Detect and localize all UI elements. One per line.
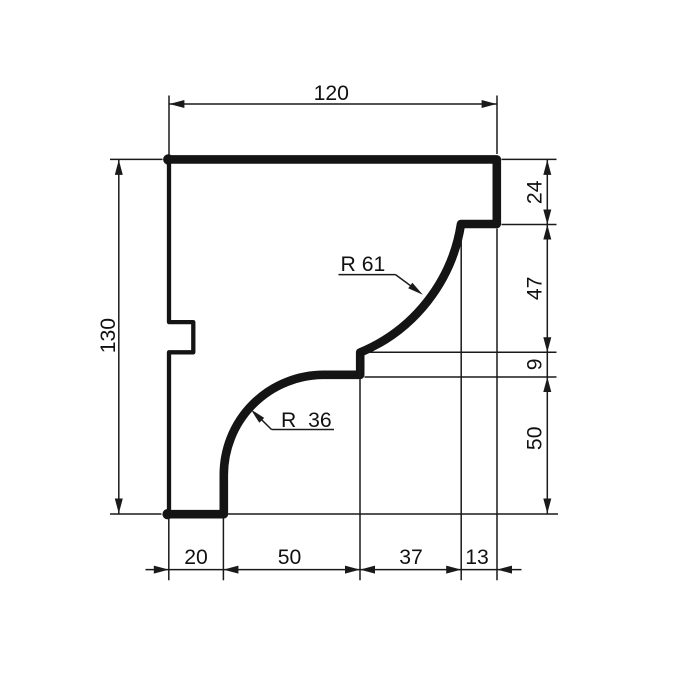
svg-text:47: 47 [523,277,546,301]
svg-text:9: 9 [523,359,546,371]
svg-text:24: 24 [523,180,546,204]
svg-text:130: 130 [97,318,120,353]
svg-text:37: 37 [399,546,423,569]
svg-text:50: 50 [278,546,302,569]
svg-text:13: 13 [465,546,489,569]
svg-text:R 61: R 61 [341,253,386,276]
svg-text:120: 120 [314,82,349,105]
svg-text:20: 20 [184,546,208,569]
svg-text:R 36: R 36 [281,409,332,432]
svg-text:50: 50 [523,427,546,451]
